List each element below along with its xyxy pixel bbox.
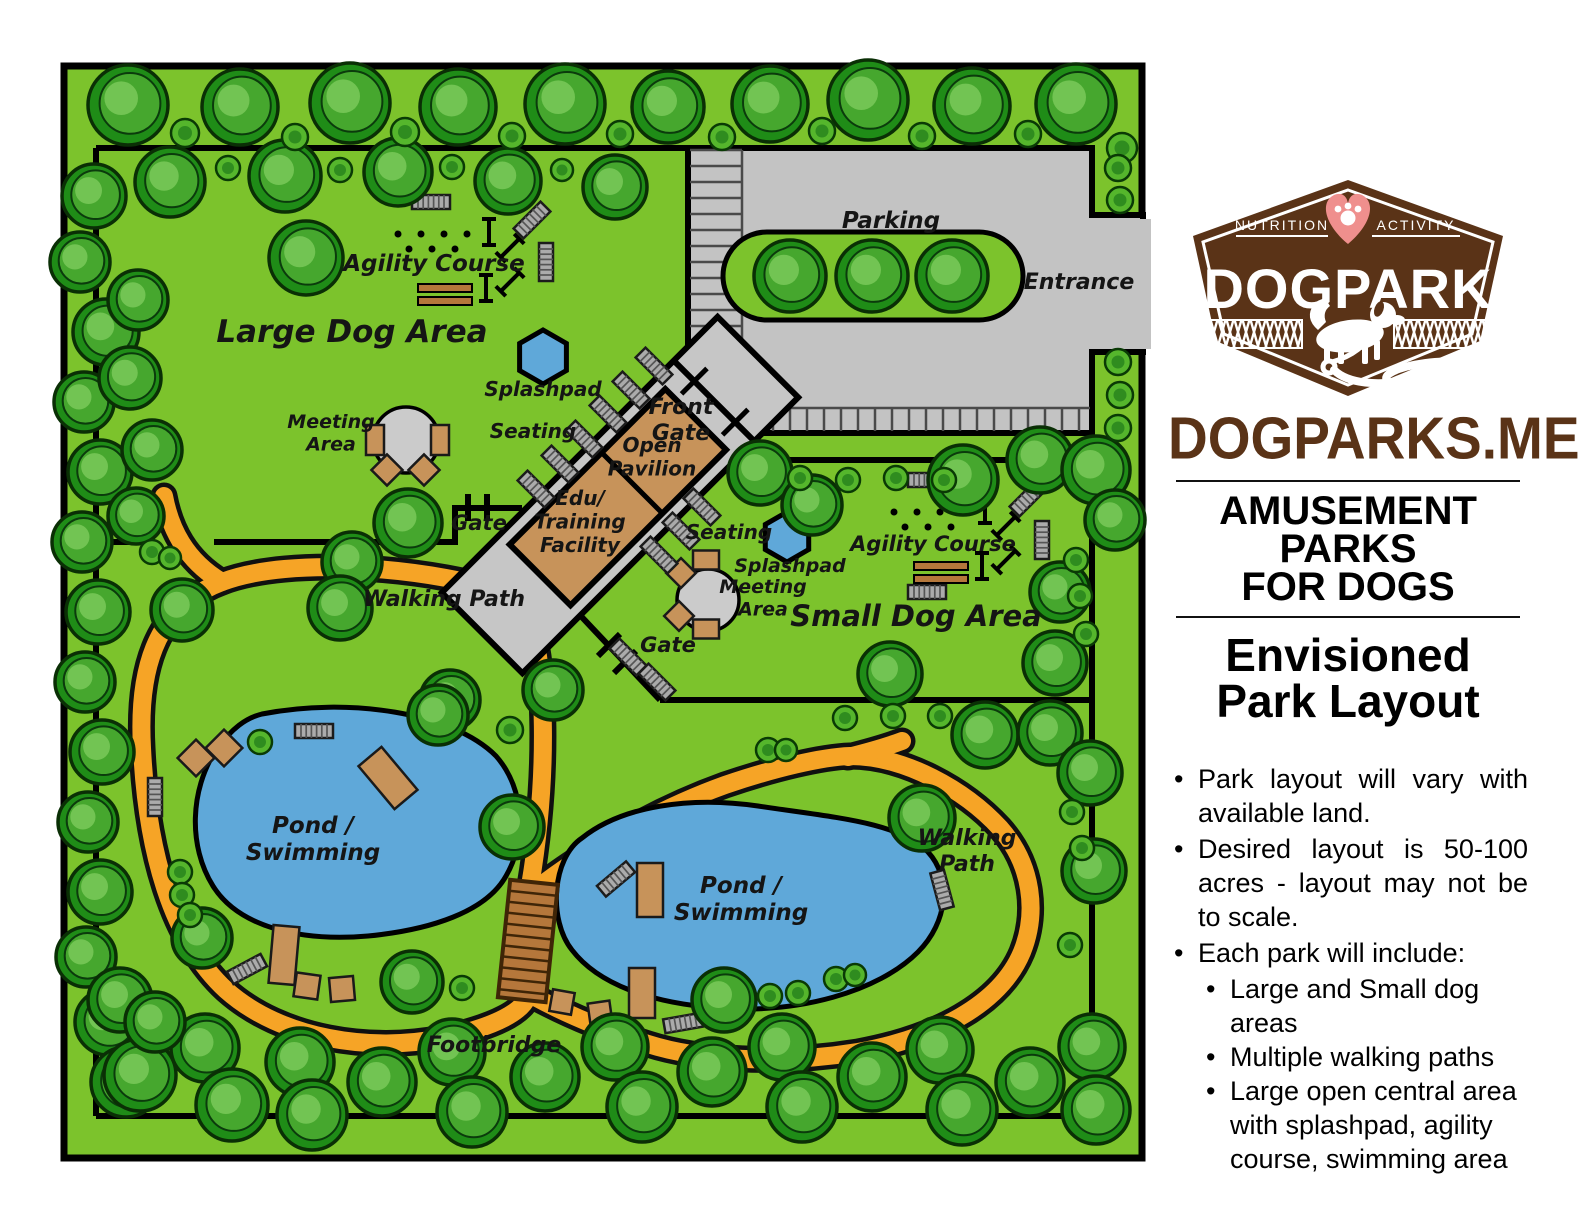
bush	[758, 984, 782, 1008]
bullet-list: •Park layout will vary with available la…	[1168, 762, 1528, 1176]
divider	[1176, 616, 1520, 618]
tree	[108, 488, 164, 544]
tree	[1036, 64, 1116, 144]
bullet-text: Desired layout is 50-100 acres - layout …	[1198, 834, 1528, 932]
bush	[1105, 349, 1131, 375]
bush	[178, 903, 202, 927]
bullet-item: •Large and Small dog areas	[1168, 972, 1528, 1040]
tree	[907, 1017, 973, 1083]
jump-bar	[914, 575, 968, 583]
sidebar: NUTRITION ACTIVITY DOGPARK	[1168, 178, 1528, 1176]
tree	[475, 148, 541, 214]
heading-amusement: AMUSEMENT PARKS FOR DOGS	[1168, 492, 1528, 606]
tree	[196, 1069, 268, 1141]
tree	[583, 155, 647, 219]
bullet-item: •Desired layout is 50-100 acres - layout…	[1168, 832, 1528, 934]
heading-line: FOR DOGS	[1168, 568, 1528, 606]
bush	[282, 124, 308, 150]
bush	[1064, 548, 1088, 572]
bullet-text: Large and Small dog areas	[1230, 974, 1479, 1038]
map-label-splashpad-small: Splashpad	[734, 555, 846, 577]
map-label-agility-course-small: Agility Course	[848, 532, 1016, 556]
dogpark-logo: NUTRITION ACTIVITY DOGPARK	[1178, 178, 1518, 400]
bench	[431, 425, 449, 455]
bush	[1105, 415, 1131, 441]
bullet-marker: •	[1206, 1074, 1215, 1108]
bush	[328, 158, 352, 182]
tree	[88, 65, 168, 145]
tree	[1085, 490, 1145, 550]
tree	[607, 1072, 677, 1142]
tree	[99, 347, 161, 409]
tree	[249, 140, 321, 212]
bush	[1058, 933, 1082, 957]
bush	[709, 124, 735, 150]
bush	[216, 156, 240, 180]
divider	[1176, 480, 1520, 482]
tree	[125, 992, 185, 1052]
bush	[1015, 121, 1041, 147]
entrance-opening	[1139, 219, 1151, 349]
tree	[277, 1080, 347, 1150]
tree	[838, 1043, 906, 1111]
jump-bar	[418, 297, 472, 305]
tree	[55, 652, 115, 712]
bush	[844, 964, 866, 986]
bush	[450, 976, 474, 1000]
logo-brand: DOGPARK	[1203, 257, 1492, 320]
bush	[932, 468, 956, 492]
bullet-marker: •	[1174, 832, 1183, 866]
heading-line: Envisioned	[1168, 632, 1528, 678]
tree	[952, 702, 1018, 768]
footbridge	[498, 880, 558, 1002]
tree	[678, 1038, 746, 1106]
tree	[582, 1014, 648, 1080]
bush	[499, 123, 525, 149]
bullet-text: Each park will include:	[1198, 938, 1465, 968]
bench	[693, 551, 719, 570]
map-label-seating-small: Seating	[686, 520, 772, 544]
logo-nutrition: NUTRITION	[1235, 217, 1329, 233]
tree	[108, 270, 168, 330]
jump-bar	[418, 284, 472, 292]
bush	[1060, 800, 1084, 824]
bullet-marker: •	[1206, 1040, 1215, 1074]
bush	[607, 121, 633, 147]
bush	[788, 466, 812, 490]
tree	[348, 1048, 416, 1116]
tree	[934, 68, 1010, 144]
map-label-agility-course-large: Agility Course	[341, 251, 525, 277]
bush	[833, 706, 857, 730]
tree	[480, 795, 544, 859]
bench	[629, 968, 655, 1018]
tree	[151, 579, 213, 641]
bush	[391, 118, 419, 146]
bush	[836, 468, 860, 492]
tree	[858, 642, 922, 706]
bush	[1070, 836, 1094, 860]
tree	[732, 66, 808, 142]
poster: Agility CourseLarge Dog AreaSplashpadMee…	[0, 0, 1584, 1224]
tree	[62, 164, 126, 228]
heading-line: Park Layout	[1168, 678, 1528, 724]
bush	[881, 704, 905, 728]
bullet-marker: •	[1174, 762, 1183, 796]
tree	[70, 720, 134, 784]
bullet-text: Park layout will vary with available lan…	[1198, 764, 1528, 828]
tree	[632, 71, 704, 143]
bench	[1035, 521, 1049, 559]
tree	[767, 1072, 837, 1142]
bush	[248, 730, 272, 754]
tree	[310, 63, 390, 143]
bullet-marker: •	[1174, 936, 1183, 970]
pond-left	[195, 707, 520, 937]
tree	[58, 792, 118, 852]
site-title: DOGPARKS.ME	[1168, 403, 1528, 472]
bush	[440, 155, 464, 179]
bullet-item: •Large open central area with splashpad,…	[1168, 1074, 1528, 1176]
bush	[809, 118, 835, 144]
bullet-item: •Each park will include:	[1168, 936, 1528, 970]
map-label-gate-small-dog: Gate	[640, 633, 696, 657]
bush	[159, 547, 181, 569]
bench	[295, 724, 333, 738]
bench	[269, 925, 300, 985]
bush	[497, 717, 523, 743]
tree	[66, 580, 130, 644]
bullet-item: •Park layout will vary with available la…	[1168, 762, 1528, 830]
tree	[364, 138, 432, 206]
tree	[122, 420, 182, 480]
bush	[1068, 584, 1092, 608]
jump-bar	[914, 562, 968, 570]
tree	[1062, 1076, 1130, 1144]
lattice-band-left	[1200, 320, 1302, 348]
tree	[408, 685, 468, 745]
bush	[909, 123, 935, 149]
bench	[637, 863, 663, 917]
tree	[1058, 741, 1122, 805]
tree	[374, 489, 442, 557]
bush	[1107, 187, 1133, 213]
splashpad-large	[520, 330, 567, 384]
lattice-band-right	[1394, 320, 1496, 348]
map-label-entrance: Entrance	[1024, 270, 1135, 295]
tree	[420, 69, 496, 145]
tree	[437, 1077, 507, 1147]
map-label-footbridge: Footbridge	[427, 1033, 562, 1058]
map-label-parking: Parking	[842, 208, 940, 234]
bench	[148, 778, 162, 816]
bench	[693, 620, 719, 639]
tree	[749, 1014, 815, 1080]
map-label-walking-path-left: Walking Path	[363, 587, 525, 612]
bullet-item: •Multiple walking paths	[1168, 1040, 1528, 1074]
tree	[381, 951, 443, 1013]
heading-envisioned: Envisioned Park Layout	[1168, 632, 1528, 724]
map-label-small-dog-area: Small Dog Area	[790, 599, 1041, 633]
bullet-text: Multiple walking paths	[1230, 1042, 1494, 1072]
tree	[927, 1075, 997, 1145]
tree	[523, 660, 583, 720]
bush	[928, 704, 952, 728]
logo-activity: ACTIVITY	[1376, 217, 1455, 233]
tree	[828, 60, 908, 140]
tree	[692, 968, 756, 1032]
bush	[1105, 155, 1131, 181]
map-label-gate-large-dog: Gate	[451, 511, 507, 535]
tree	[916, 240, 988, 312]
bench	[908, 585, 946, 599]
map-label-seating-large: Seating	[490, 419, 576, 443]
bush	[551, 159, 573, 181]
bush	[1074, 622, 1098, 646]
bush	[171, 119, 199, 147]
heading-line: AMUSEMENT	[1168, 492, 1528, 530]
bench	[329, 976, 355, 1002]
tree	[754, 240, 826, 312]
heading-line: PARKS	[1168, 530, 1528, 568]
bullet-text: Large open central area with splashpad, …	[1230, 1076, 1517, 1174]
tree	[202, 69, 278, 145]
tree	[68, 860, 132, 924]
bench	[293, 972, 320, 999]
bullet-marker: •	[1206, 972, 1215, 1006]
map-label-large-dog-area: Large Dog Area	[216, 314, 487, 350]
bench	[549, 989, 574, 1014]
tree	[50, 232, 110, 292]
bush	[884, 466, 908, 490]
tree	[836, 240, 908, 312]
tree	[52, 512, 112, 572]
tree	[525, 64, 605, 144]
bench	[539, 243, 553, 281]
tree	[1059, 1014, 1125, 1080]
bush	[775, 739, 797, 761]
bush	[1107, 382, 1133, 408]
tree	[269, 221, 343, 295]
bush	[786, 981, 810, 1005]
map-label-splashpad-large: Splashpad	[484, 377, 602, 401]
tree	[996, 1048, 1064, 1116]
bush	[168, 860, 192, 884]
tree	[135, 147, 205, 217]
